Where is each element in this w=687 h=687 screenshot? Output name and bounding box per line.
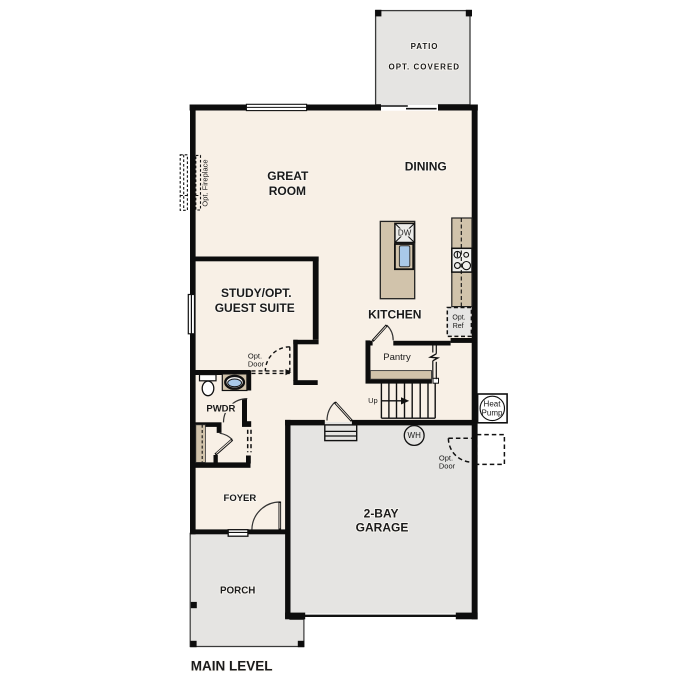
svg-text:2-BAY: 2-BAY: [364, 506, 399, 520]
svg-text:STUDY/OPT.: STUDY/OPT.: [221, 286, 292, 300]
svg-text:FOYER: FOYER: [224, 493, 257, 504]
svg-text:Opt.: Opt.: [452, 314, 465, 321]
svg-text:OPT. COVERED: OPT. COVERED: [389, 62, 461, 71]
svg-text:WH: WH: [408, 431, 422, 440]
svg-text:Opt. Fireplace: Opt. Fireplace: [201, 159, 210, 206]
svg-text:Ref: Ref: [453, 323, 464, 330]
svg-text:Pump: Pump: [482, 409, 503, 418]
svg-text:MAIN LEVEL: MAIN LEVEL: [191, 658, 273, 673]
svg-text:GARAGE: GARAGE: [356, 521, 409, 535]
svg-text:Up: Up: [368, 396, 378, 405]
svg-text:Heat: Heat: [484, 400, 502, 409]
svg-text:KITCHEN: KITCHEN: [368, 308, 421, 322]
svg-text:PATIO: PATIO: [411, 42, 439, 51]
svg-text:Door: Door: [248, 360, 265, 369]
svg-text:ROOM: ROOM: [269, 184, 306, 198]
svg-text:GREAT: GREAT: [267, 169, 309, 183]
svg-text:PWDR: PWDR: [206, 403, 235, 414]
svg-text:Pantry: Pantry: [383, 352, 411, 363]
svg-text:DINING: DINING: [405, 159, 447, 173]
svg-text:Door: Door: [439, 461, 456, 470]
svg-text:DW: DW: [398, 229, 412, 238]
svg-text:GUEST SUITE: GUEST SUITE: [215, 301, 295, 315]
svg-text:PORCH: PORCH: [220, 585, 255, 596]
